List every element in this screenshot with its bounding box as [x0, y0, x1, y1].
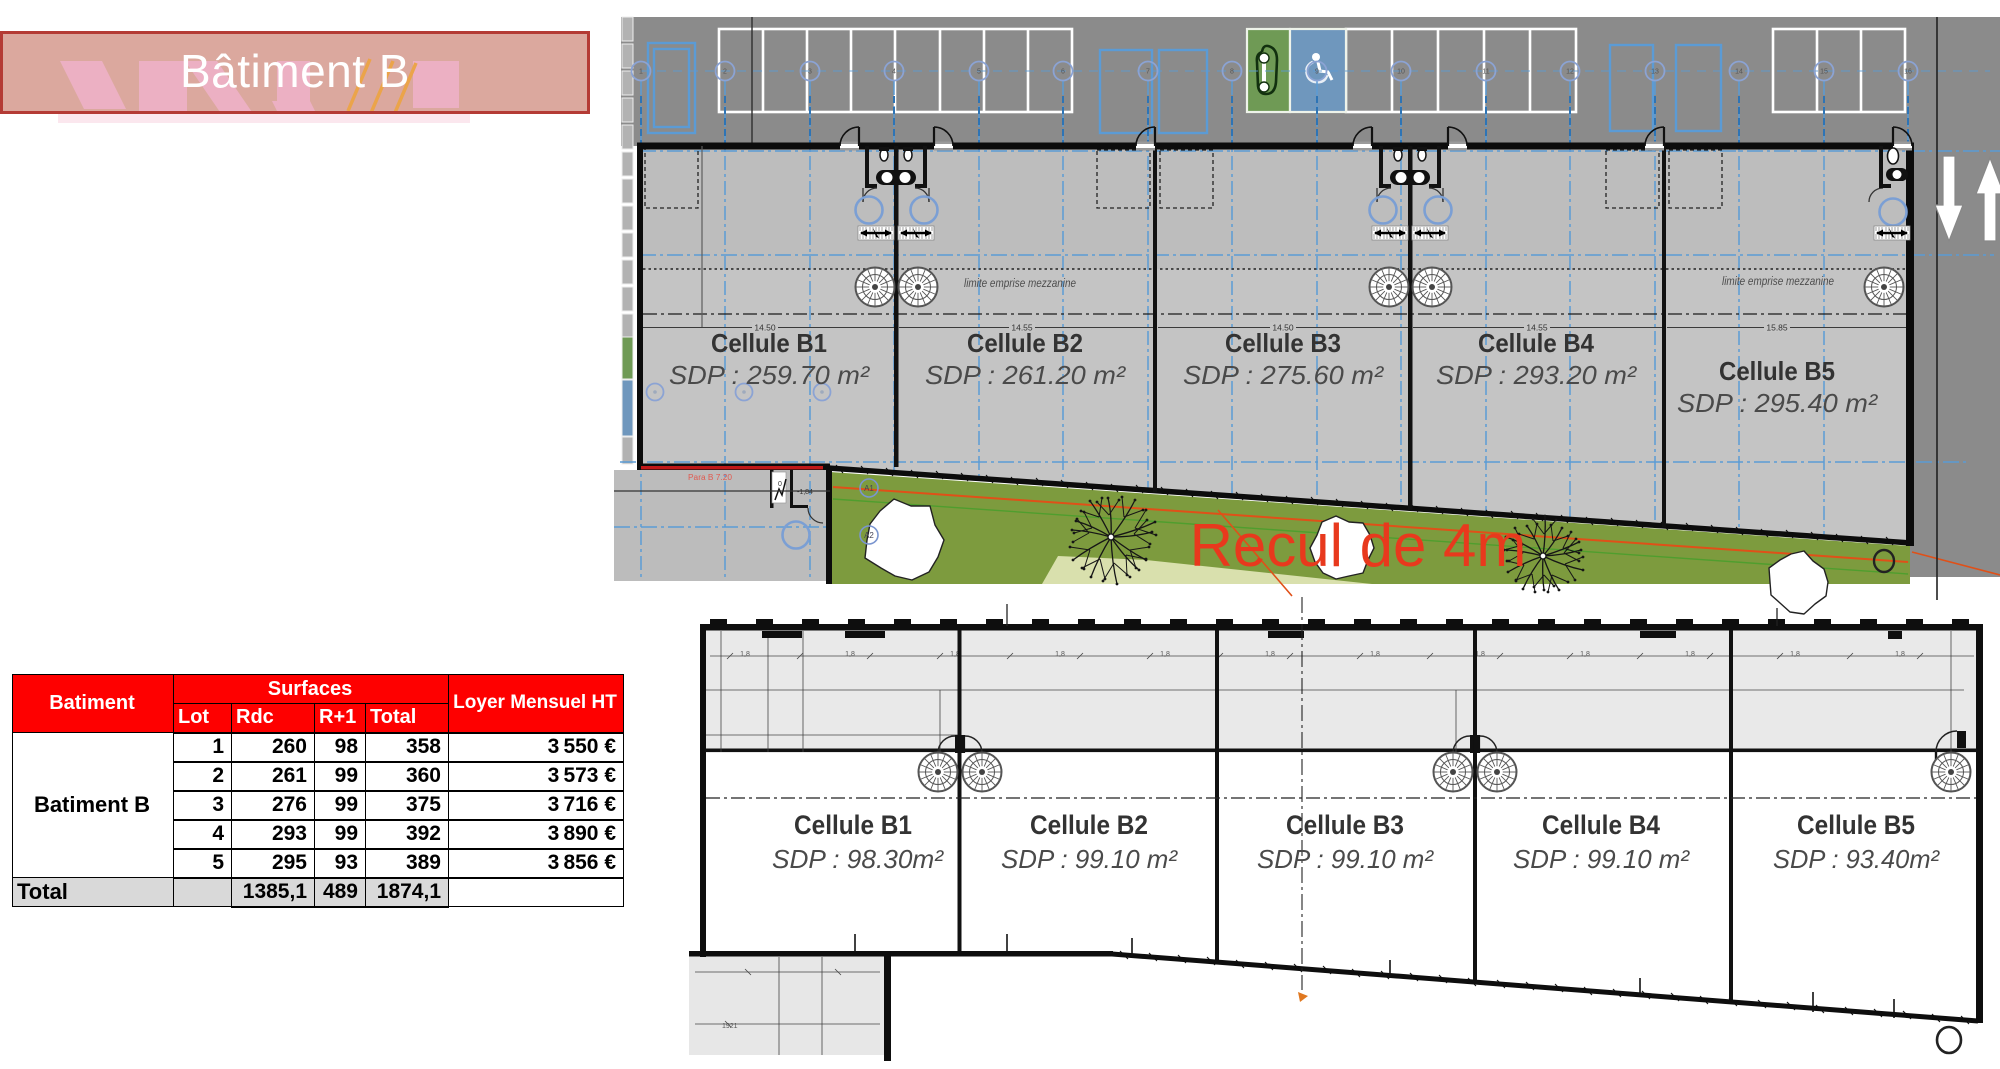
svg-text:1,8: 1,8: [845, 651, 855, 658]
svg-text:Cellule B3: Cellule B3: [1225, 328, 1341, 358]
svg-text:1,8: 1,8: [1160, 651, 1170, 658]
svg-text:SDP : 275.60 m²: SDP : 275.60 m²: [1183, 360, 1384, 390]
svg-text:1,8: 1,8: [740, 651, 750, 658]
svg-text:A1: A1: [864, 484, 874, 493]
svg-text:4: 4: [892, 69, 896, 76]
svg-text:limite emprise mezzanine: limite emprise mezzanine: [964, 276, 1076, 290]
svg-text:8: 8: [1230, 69, 1234, 76]
svg-text:15: 15: [1820, 69, 1828, 76]
svg-text:SDP : 99.10 m²: SDP : 99.10 m²: [1001, 844, 1178, 874]
svg-text:1,8: 1,8: [1580, 651, 1590, 658]
svg-text:15.85: 15.85: [1766, 323, 1788, 333]
svg-text:1,8: 1,8: [1370, 651, 1380, 658]
svg-text:-1,84: -1,84: [797, 489, 813, 496]
svg-text:14: 14: [1735, 69, 1743, 76]
svg-text:SDP : 99.10 m²: SDP : 99.10 m²: [1513, 844, 1690, 874]
svg-text:SDP : 261.20 m²: SDP : 261.20 m²: [925, 360, 1126, 390]
svg-text:11: 11: [1482, 69, 1489, 76]
svg-text:Cellule B4: Cellule B4: [1542, 810, 1660, 840]
svg-text:SDP : 293.20 m²: SDP : 293.20 m²: [1436, 360, 1637, 390]
svg-text:16: 16: [1904, 69, 1912, 76]
svg-text:10: 10: [1397, 69, 1405, 76]
svg-text:9: 9: [1315, 69, 1319, 76]
svg-text:A2: A2: [864, 531, 874, 540]
svg-text:Recul de 4m: Recul de 4m: [1190, 512, 1527, 579]
svg-text:SDP : 295.40 m²: SDP : 295.40 m²: [1677, 388, 1878, 418]
svg-text:SDP : 259.70 m²: SDP : 259.70 m²: [669, 360, 870, 390]
svg-text:SDP : 99.10 m²: SDP : 99.10 m²: [1257, 844, 1434, 874]
svg-text:1,8: 1,8: [1265, 651, 1275, 658]
svg-text:Cellule B3: Cellule B3: [1286, 810, 1404, 840]
svg-text:12: 12: [1566, 69, 1574, 76]
svg-text:1,8: 1,8: [1895, 651, 1905, 658]
svg-text:1921: 1921: [722, 1023, 738, 1030]
svg-text:7: 7: [1146, 69, 1150, 76]
svg-text:1: 1: [639, 69, 643, 76]
svg-text:Cellule B1: Cellule B1: [794, 810, 912, 840]
svg-text:1,8: 1,8: [1055, 651, 1065, 658]
svg-text:3: 3: [808, 69, 812, 76]
svg-text:Cellule B2: Cellule B2: [1030, 810, 1148, 840]
svg-text:SDP : 93.40m²: SDP : 93.40m²: [1773, 844, 1940, 874]
svg-text:Cellule B2: Cellule B2: [967, 328, 1083, 358]
svg-text:Cellule B5: Cellule B5: [1797, 810, 1915, 840]
svg-text:Cellule B4: Cellule B4: [1478, 328, 1594, 358]
svg-text:5: 5: [977, 69, 981, 76]
svg-text:2: 2: [723, 69, 727, 76]
svg-text:1,8: 1,8: [1685, 651, 1695, 658]
svg-text:6: 6: [1061, 69, 1065, 76]
svg-text:Cellule B5: Cellule B5: [1719, 356, 1835, 386]
svg-text:Para B 7.20: Para B 7.20: [688, 473, 733, 482]
svg-text:SDP : 98.30m²: SDP : 98.30m²: [772, 844, 944, 874]
svg-text:limite emprise mezzanine: limite emprise mezzanine: [1722, 274, 1834, 288]
svg-text:0: 0: [778, 481, 782, 488]
svg-text:13: 13: [1651, 69, 1659, 76]
svg-text:Cellule B1: Cellule B1: [711, 328, 827, 358]
svg-text:1,8: 1,8: [1790, 651, 1800, 658]
